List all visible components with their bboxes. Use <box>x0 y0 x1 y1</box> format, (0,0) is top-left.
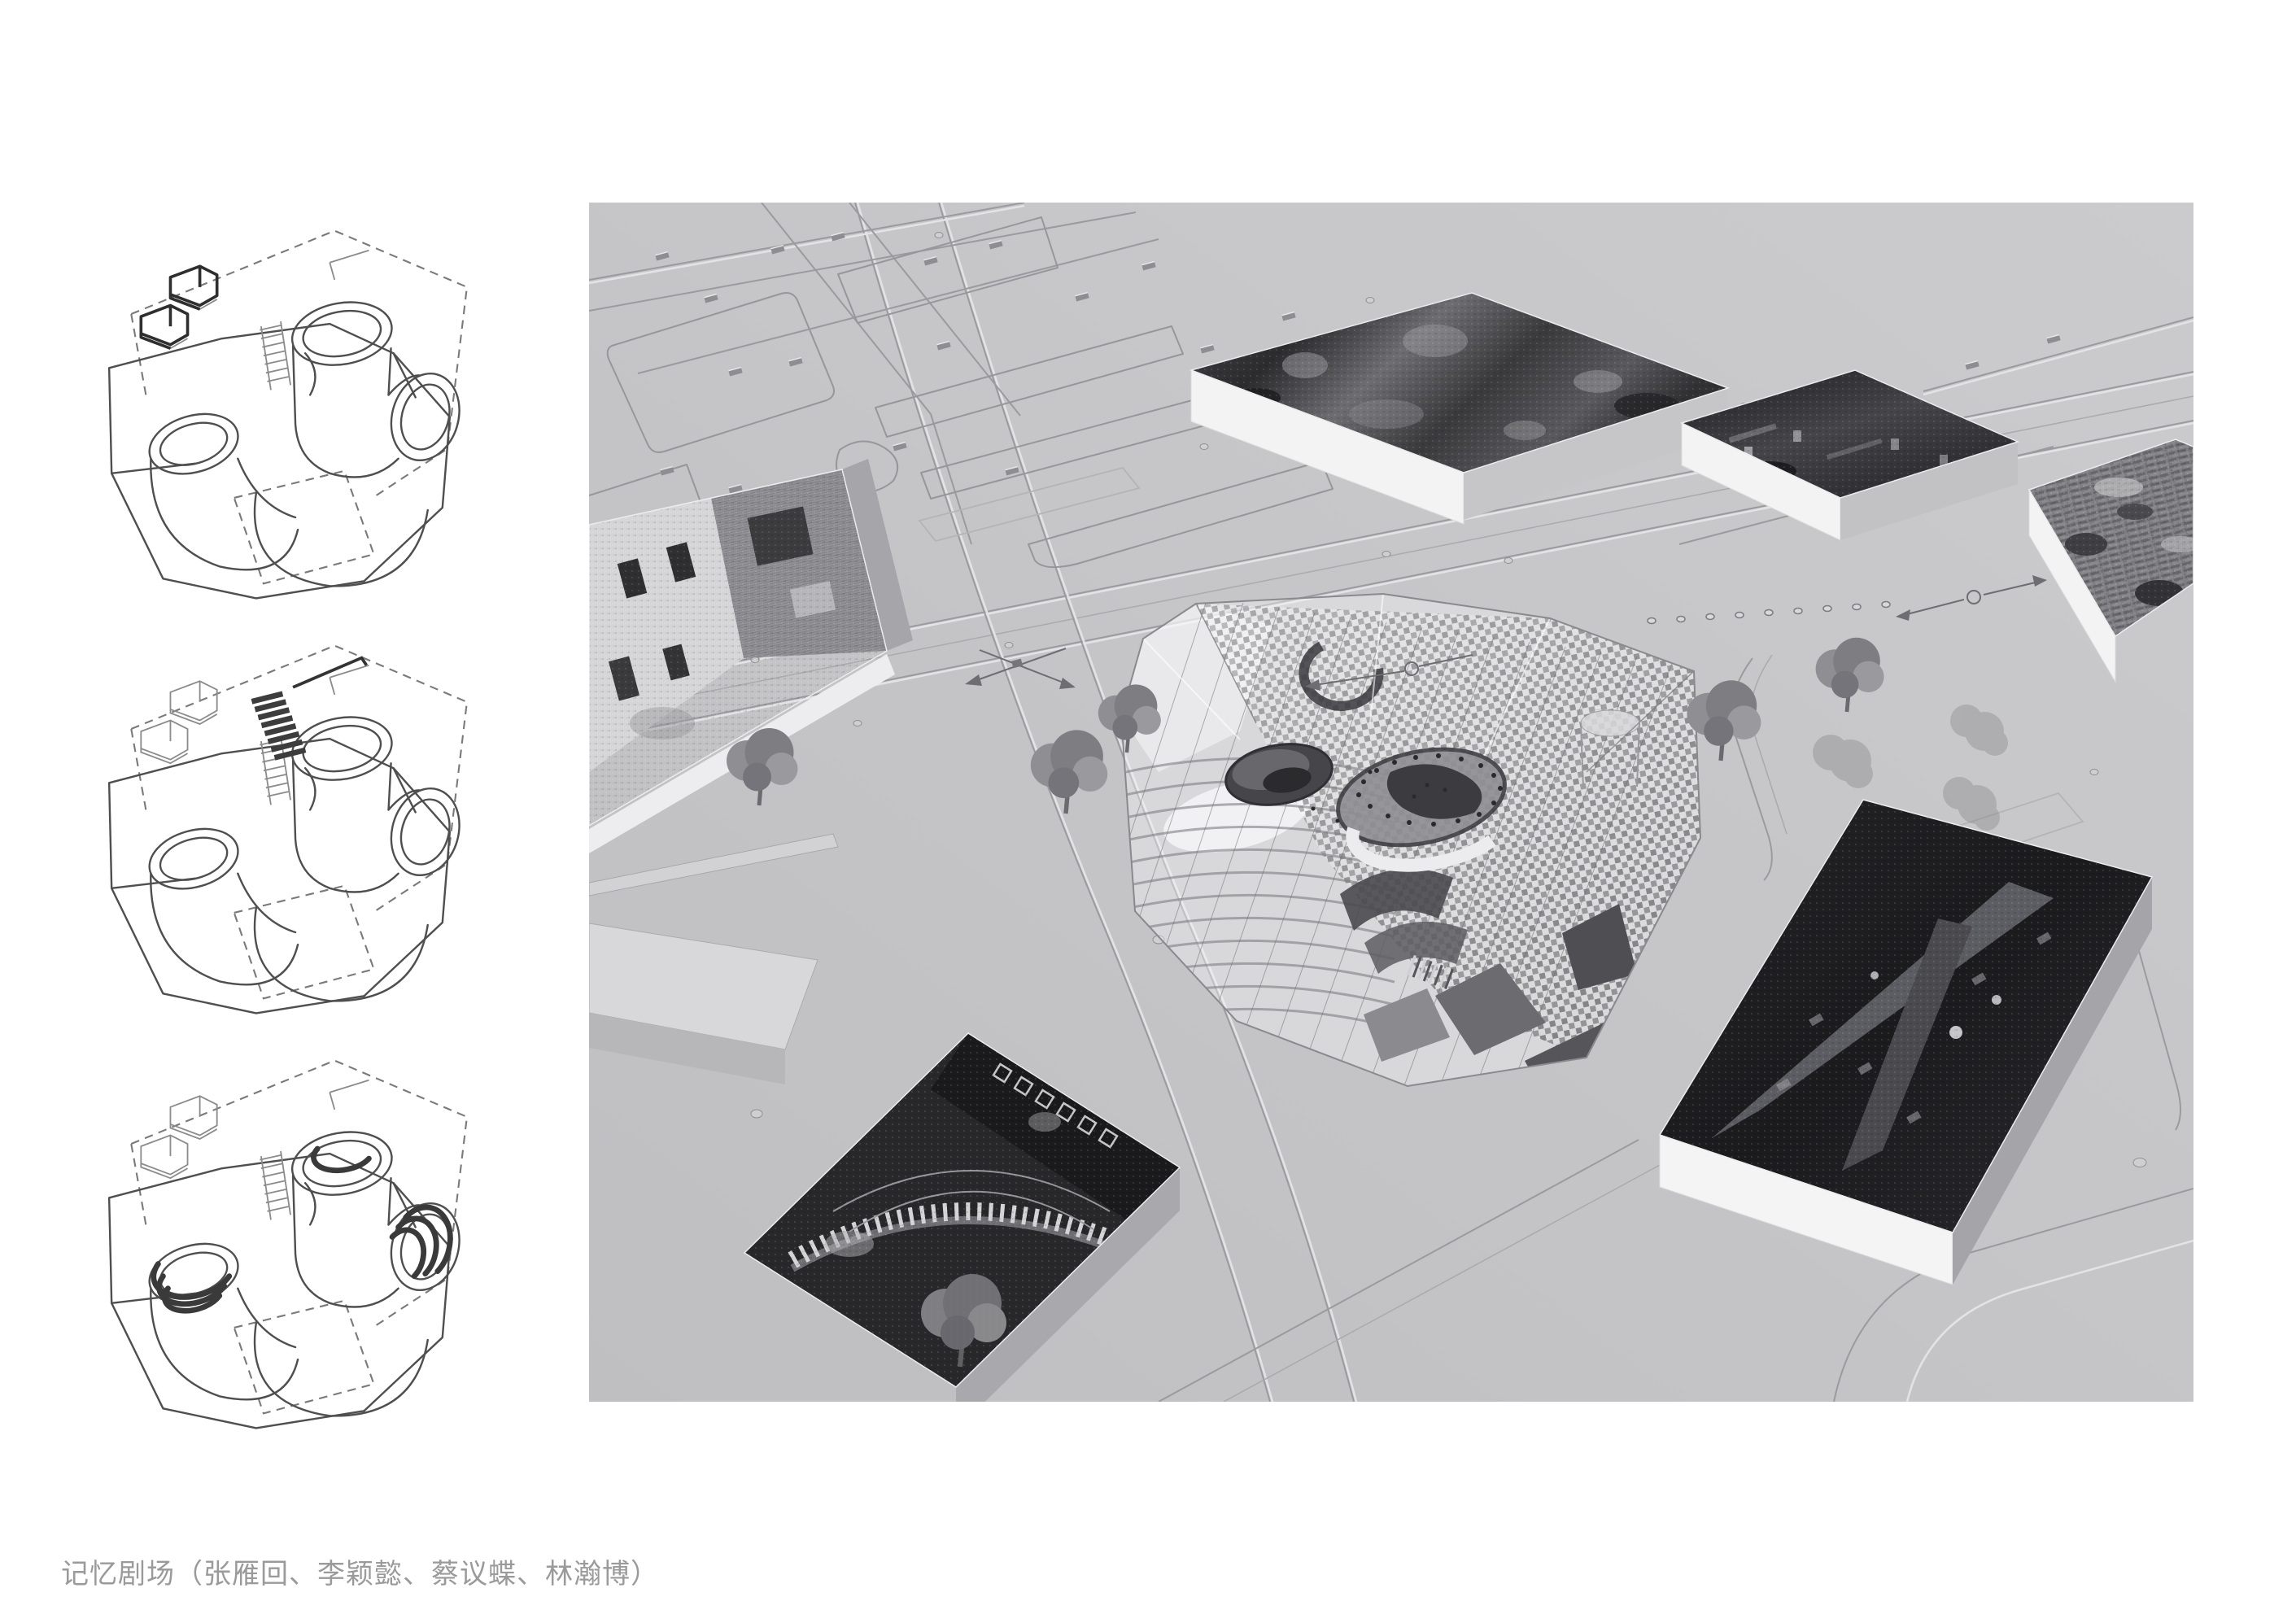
axon-sketch-2 <box>77 622 482 1029</box>
axon-sketch-3 <box>77 1037 482 1444</box>
figure-caption: 记忆剧场（张雁回、李颖懿、蔡议蝶、林瀚博） <box>61 1551 659 1591</box>
axon-sketch-1 <box>77 207 482 614</box>
sketch-1-accent-boxes <box>141 266 216 348</box>
site-render <box>589 203 2193 1402</box>
